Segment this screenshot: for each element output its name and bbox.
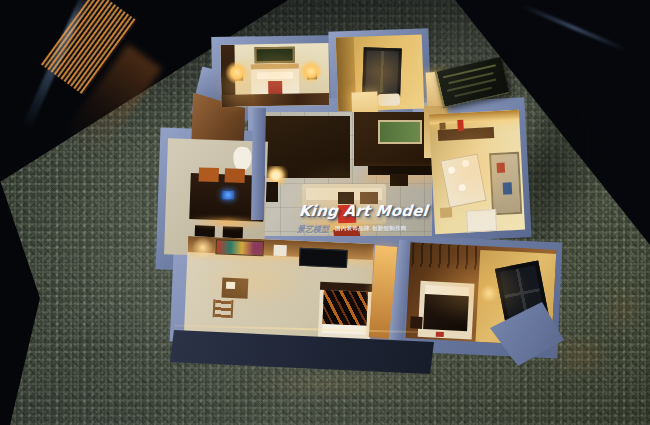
- watermark-brand-cn: 景艺模型: [297, 224, 329, 235]
- bed-pillows: [257, 72, 293, 80]
- art-red-mark: [497, 163, 506, 173]
- white-cabinet: [466, 209, 497, 233]
- plate-setting: [462, 159, 470, 167]
- wall-tv: [299, 248, 348, 268]
- bathroom-fixture: [378, 93, 400, 106]
- sideboard-decor: [439, 123, 445, 130]
- watermark-tagline-cn: 国内装饰品牌 创新型制作商: [335, 225, 407, 232]
- bedroom3-chair: [410, 316, 423, 329]
- room-bathroom: [336, 35, 425, 112]
- chair-back-orange-left: [199, 167, 219, 182]
- art-screen-panel: [489, 152, 522, 215]
- white-box: [273, 245, 286, 257]
- art-blue-mark: [503, 182, 513, 194]
- partition-wall-left: [251, 108, 266, 220]
- dining-table: [440, 154, 486, 208]
- wall-lamp-glow: [191, 236, 214, 259]
- plate-setting: [448, 166, 456, 174]
- easel-ladder: [213, 299, 234, 318]
- room-master-bedroom: [220, 43, 329, 107]
- bedroom3-lamp-glow: [480, 284, 499, 303]
- side-cabinet: [266, 182, 278, 202]
- blue-glow-object: [222, 190, 234, 199]
- red-vase: [457, 120, 464, 131]
- room-dining: [429, 110, 525, 235]
- bedroom-wall-art: [255, 47, 295, 64]
- desk: [222, 278, 249, 299]
- chair-back-orange-right: [225, 168, 245, 183]
- bed3-red-accent: [436, 332, 444, 337]
- bedside-lamp-glow-right: [299, 59, 323, 83]
- bed3-dark-duvet: [423, 294, 469, 331]
- sideboard: [438, 127, 494, 141]
- white-fixture: [233, 147, 252, 172]
- stool: [440, 207, 453, 218]
- bathroom-window: [362, 47, 402, 96]
- plate-setting: [458, 183, 466, 191]
- bedroom-front-ledge: [221, 93, 329, 107]
- watermark-subtitle: 景艺模型 国内装饰品牌 创新型制作商: [297, 224, 440, 236]
- coffee-table: [390, 174, 408, 186]
- bed2-patterned-duvet: [322, 290, 367, 326]
- desk-paper: [226, 282, 235, 289]
- colorful-artwork: [215, 239, 264, 256]
- bedside-lamp-glow-left: [225, 60, 249, 84]
- room-bedroom-2: [184, 236, 374, 340]
- green-painting: [378, 120, 422, 144]
- wardrobe: [411, 242, 478, 269]
- watermark-title: King Art Model: [298, 202, 429, 220]
- photo-scene: King Art Model 景艺模型 国内装饰品牌 创新型制作商: [0, 0, 650, 425]
